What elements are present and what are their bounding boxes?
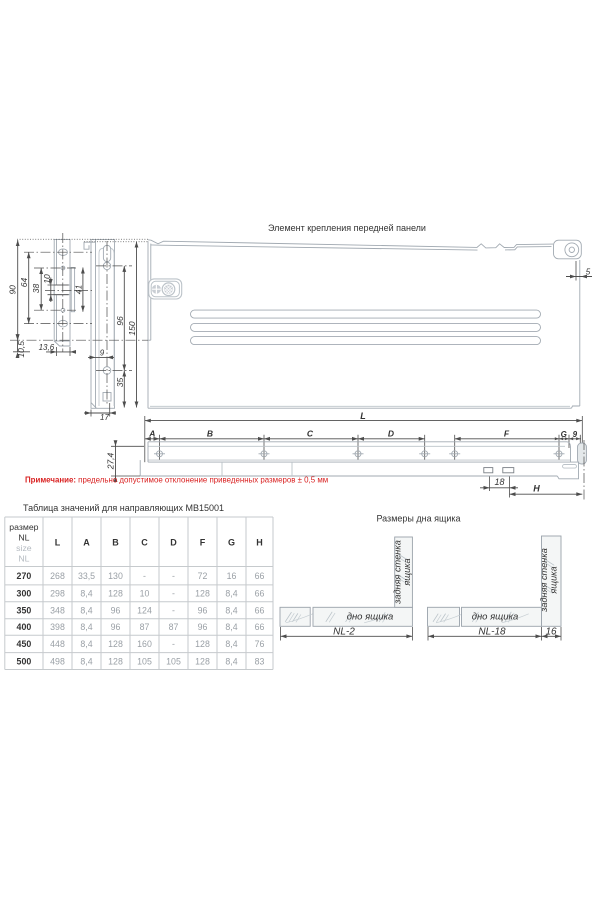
svg-text:8,4: 8,4 [80,605,92,615]
svg-text:-: - [172,589,175,599]
svg-text:268: 268 [50,571,65,581]
svg-text:270: 270 [17,571,32,581]
svg-text:33,5: 33,5 [78,571,95,581]
svg-text:D: D [170,538,177,548]
svg-text:400: 400 [17,622,32,632]
svg-text:398: 398 [50,622,65,632]
svg-text:A: A [148,429,155,439]
svg-text:83: 83 [255,656,265,666]
svg-text:96: 96 [115,316,125,326]
svg-text:G: G [228,538,235,548]
svg-text:D: D [388,429,394,439]
svg-text:10: 10 [140,589,150,599]
svg-text:10,5: 10,5 [16,341,26,358]
svg-text:38: 38 [31,284,41,294]
svg-text:L: L [55,538,61,548]
svg-text:300: 300 [17,589,32,599]
svg-text:128: 128 [108,639,123,649]
svg-text:9: 9 [573,430,578,439]
svg-text:F: F [200,538,206,548]
svg-text:NL: NL [18,554,29,564]
svg-text:105: 105 [137,656,152,666]
svg-text:348: 348 [50,605,65,615]
svg-text:96: 96 [111,605,121,615]
svg-text:задняя стенка: задняя стенка [392,540,402,605]
svg-text:128: 128 [108,656,123,666]
svg-text:size: size [16,543,32,553]
svg-text:H: H [533,483,540,493]
svg-text:35: 35 [115,378,125,388]
svg-text:8,4: 8,4 [80,589,92,599]
svg-text:18: 18 [494,477,504,487]
svg-text:66: 66 [255,622,265,632]
svg-text:130: 130 [108,571,123,581]
svg-text:Примечание: предельно допустим: Примечание: предельно допустимое отклоне… [25,476,328,485]
svg-text:задняя стенка: задняя стенка [539,548,549,613]
svg-text:16: 16 [545,626,557,637]
svg-text:76: 76 [255,639,265,649]
svg-text:8,4: 8,4 [80,656,92,666]
svg-text:66: 66 [255,605,265,615]
svg-text:Элемент крепления передней пан: Элемент крепления передней панели [268,223,426,233]
svg-text:87: 87 [140,622,150,632]
svg-text:96: 96 [111,622,121,632]
svg-text:124: 124 [137,605,152,615]
svg-text:B: B [207,429,213,439]
svg-text:8,4: 8,4 [80,639,92,649]
svg-text:5: 5 [586,267,591,276]
svg-text:8,4: 8,4 [225,639,237,649]
svg-text:96: 96 [198,605,208,615]
svg-text:8,4: 8,4 [225,622,237,632]
svg-text:66: 66 [255,571,265,581]
svg-text:-: - [172,571,175,581]
svg-text:448: 448 [50,639,65,649]
svg-text:350: 350 [17,605,32,615]
svg-text:13,6: 13,6 [39,343,55,352]
svg-text:17: 17 [100,413,109,422]
svg-text:64: 64 [19,278,29,288]
svg-text:128: 128 [195,589,210,599]
svg-text:8,4: 8,4 [225,605,237,615]
svg-text:NL: NL [18,533,29,543]
svg-text:C: C [141,538,148,548]
svg-text:41: 41 [73,285,83,295]
svg-text:298: 298 [50,589,65,599]
svg-text:16: 16 [227,571,237,581]
svg-text:-: - [172,605,175,615]
svg-text:NL-2: NL-2 [333,626,355,637]
svg-text:498: 498 [50,656,65,666]
svg-text:9: 9 [100,349,105,358]
svg-text:105: 105 [166,656,181,666]
svg-text:H: H [256,538,263,548]
svg-text:8,4: 8,4 [225,589,237,599]
svg-text:L: L [360,411,366,421]
svg-text:B: B [112,538,119,548]
svg-text:90: 90 [8,285,18,295]
svg-text:72: 72 [198,571,208,581]
svg-text:8,4: 8,4 [225,656,237,666]
svg-text:128: 128 [195,656,210,666]
svg-text:C: C [307,429,314,439]
svg-text:8,4: 8,4 [80,622,92,632]
svg-text:27,4: 27,4 [105,452,115,470]
svg-text:размер: размер [9,522,38,532]
svg-text:66: 66 [255,589,265,599]
svg-text:дно ящика: дно ящика [472,611,519,622]
svg-text:150: 150 [127,321,137,335]
svg-text:500: 500 [17,656,32,666]
svg-text:160: 160 [137,639,152,649]
svg-text:G: G [561,430,567,439]
svg-text:F: F [504,429,510,439]
svg-text:A: A [83,538,90,548]
svg-text:дно ящика: дно ящика [347,611,394,622]
svg-text:ящика: ящика [548,566,558,594]
svg-text:96: 96 [198,622,208,632]
svg-text:-: - [172,639,175,649]
svg-text:-: - [143,571,146,581]
svg-text:Таблица значений для направляю: Таблица значений для направляющих МВ1500… [23,503,224,513]
svg-text:Размеры дна ящика: Размеры дна ящика [376,514,460,524]
svg-text:128: 128 [195,639,210,649]
svg-text:ящика: ящика [402,558,412,586]
svg-text:87: 87 [169,622,179,632]
svg-text:NL-18: NL-18 [478,626,506,637]
svg-text:10: 10 [42,274,52,284]
svg-text:128: 128 [108,589,123,599]
svg-text:450: 450 [17,639,32,649]
